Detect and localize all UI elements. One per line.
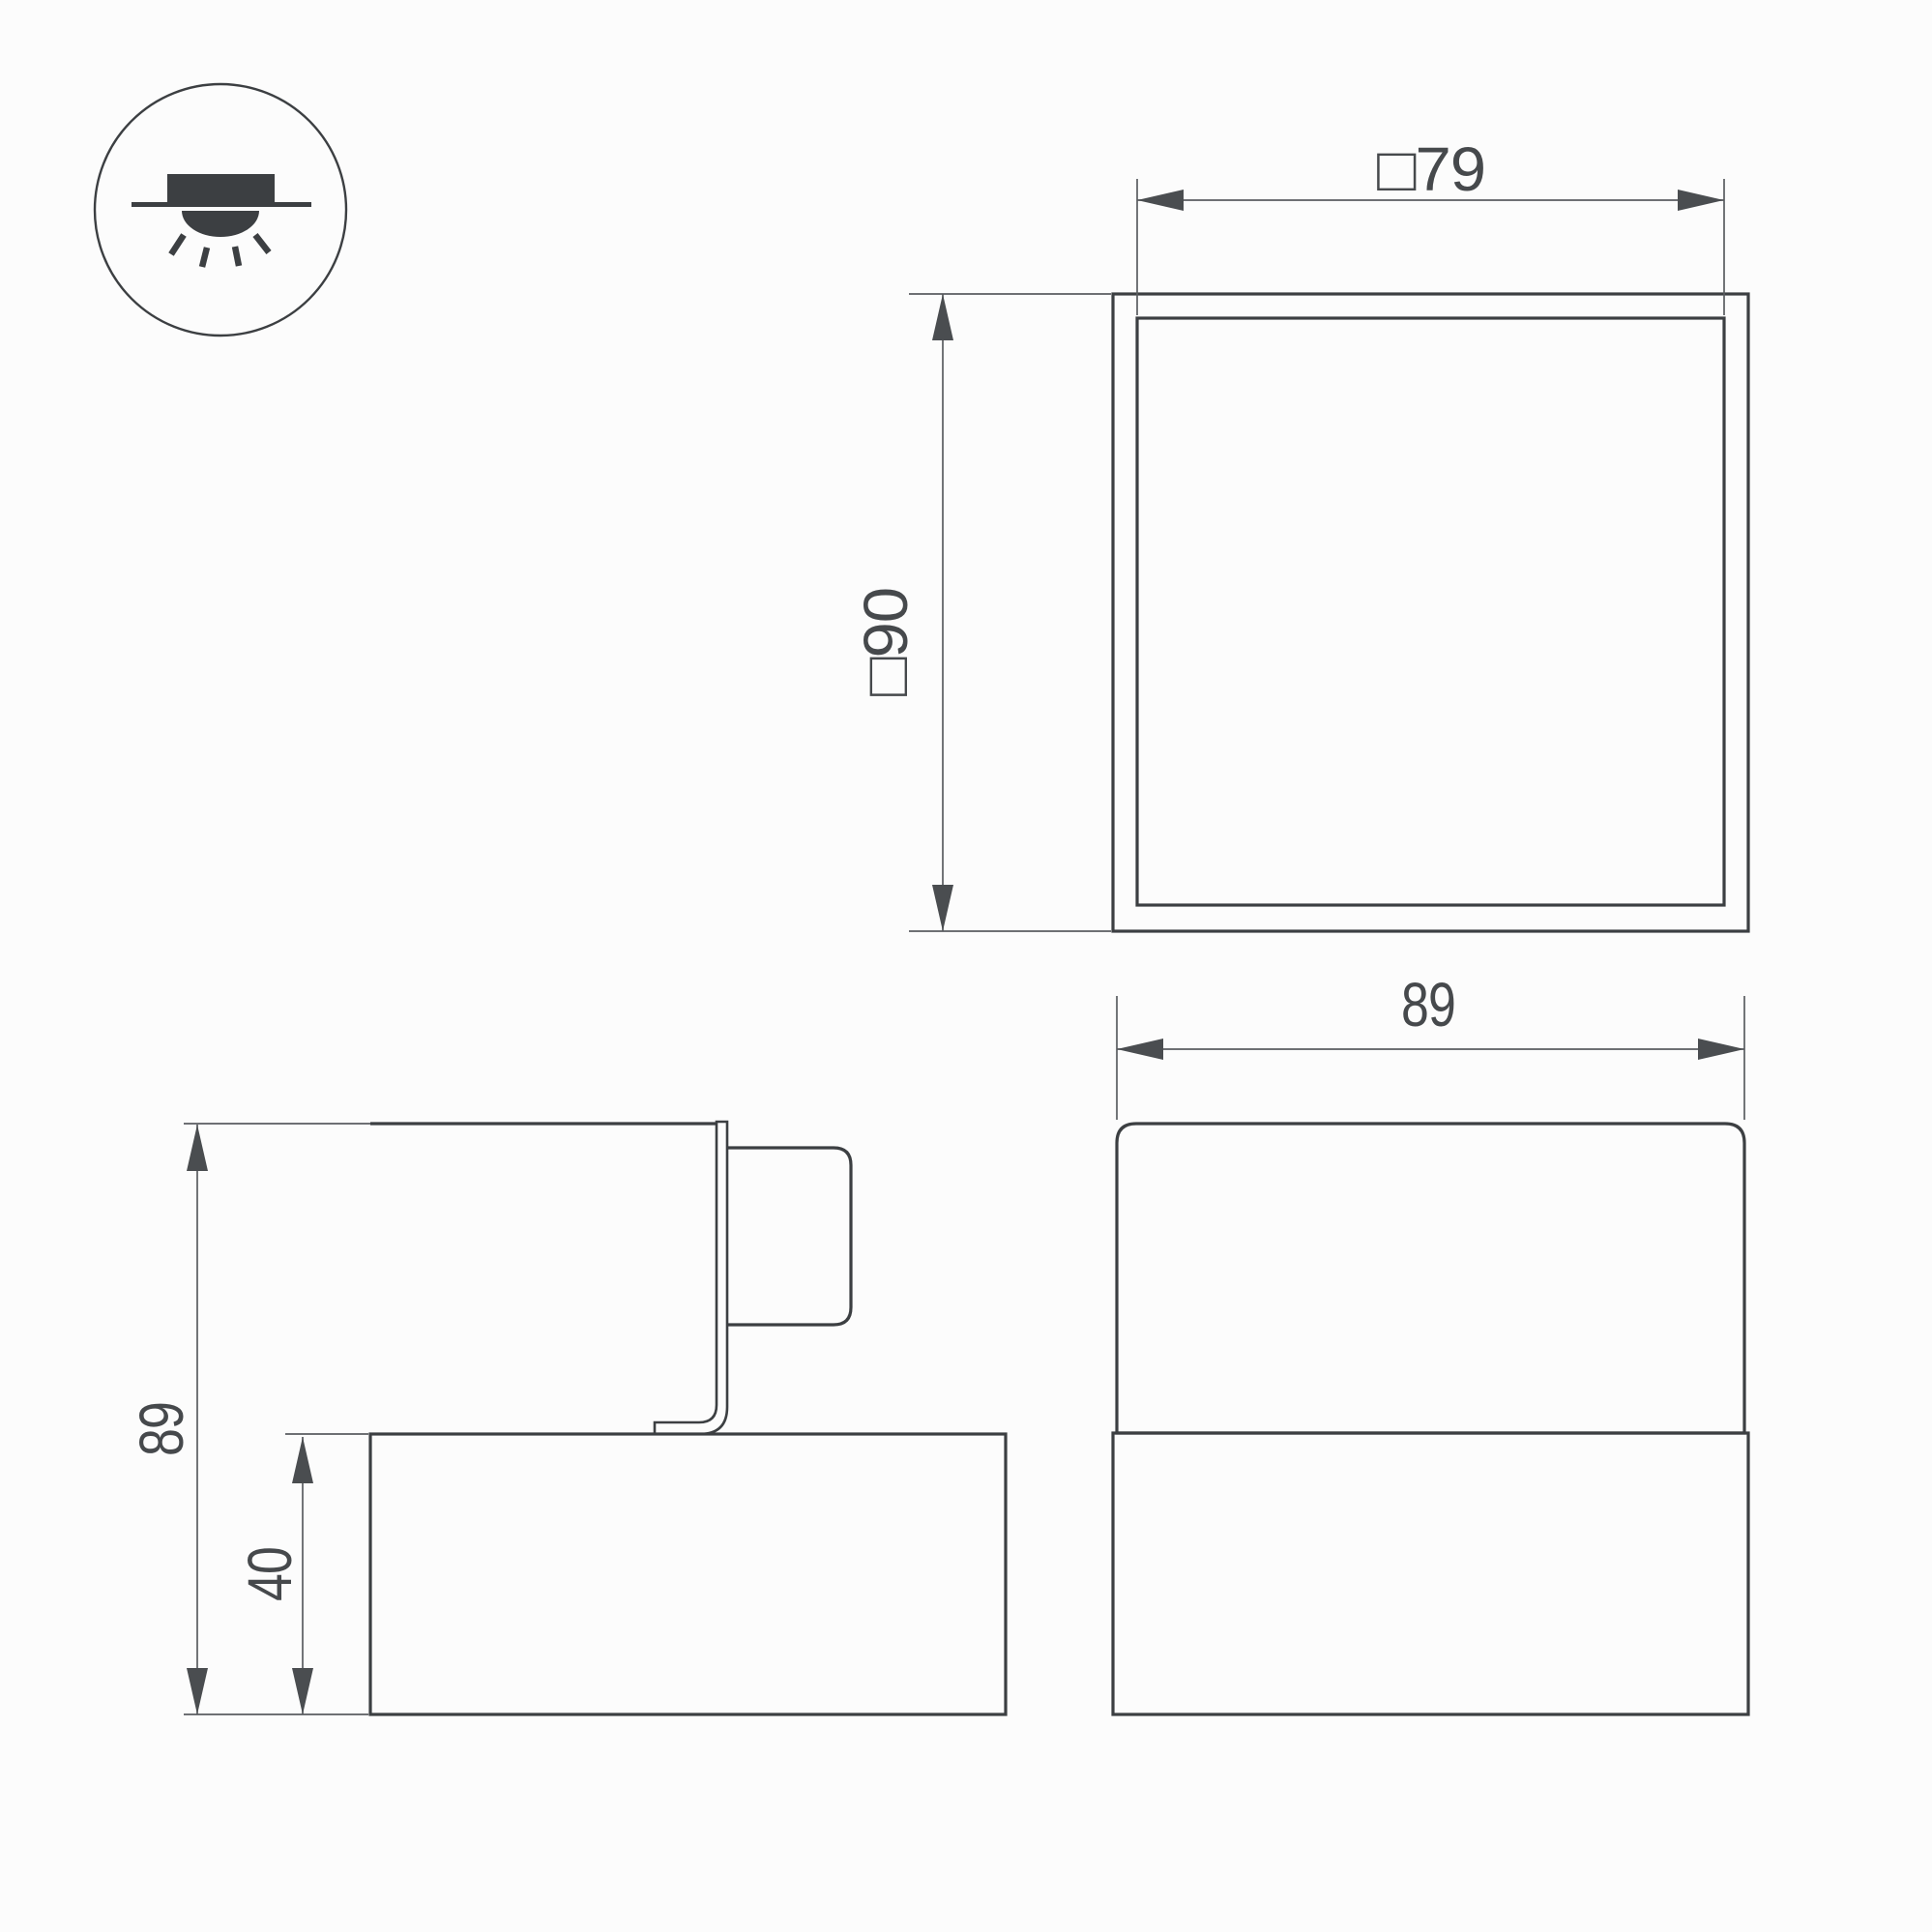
plan-height-label: □90 — [851, 588, 921, 696]
side-base-height-label: 40 — [235, 1547, 305, 1601]
front-width-dimension: 89 — [1117, 970, 1744, 1120]
plan-outer-square — [1113, 294, 1748, 931]
front-base-body — [1113, 1433, 1748, 1714]
plan-inner-square — [1137, 318, 1724, 905]
side-base-body — [370, 1434, 1006, 1714]
side-view: 89 40 — [127, 1122, 1006, 1714]
plan-width-dimension: □79 — [1137, 134, 1724, 315]
plan-width-label: □79 — [1377, 134, 1485, 204]
side-height-label: 89 — [127, 1402, 196, 1456]
side-mount-bracket — [655, 1122, 727, 1434]
recessed-downlight-icon — [132, 174, 311, 267]
front-view: 89 — [1113, 970, 1748, 1714]
plan-view: □79 □90 — [851, 134, 1748, 931]
mount-type-icon — [95, 84, 346, 336]
front-width-label: 89 — [1401, 970, 1455, 1039]
icon-circle — [95, 84, 346, 336]
front-head-body — [1117, 1124, 1744, 1433]
plan-height-dimension: □90 — [851, 294, 1111, 931]
side-base-height-dimension: 40 — [235, 1434, 368, 1714]
side-height-dimension: 89 — [127, 1125, 368, 1714]
dimension-drawing: □79 □90 89 — [0, 0, 1932, 1932]
side-driver-box — [727, 1148, 851, 1325]
